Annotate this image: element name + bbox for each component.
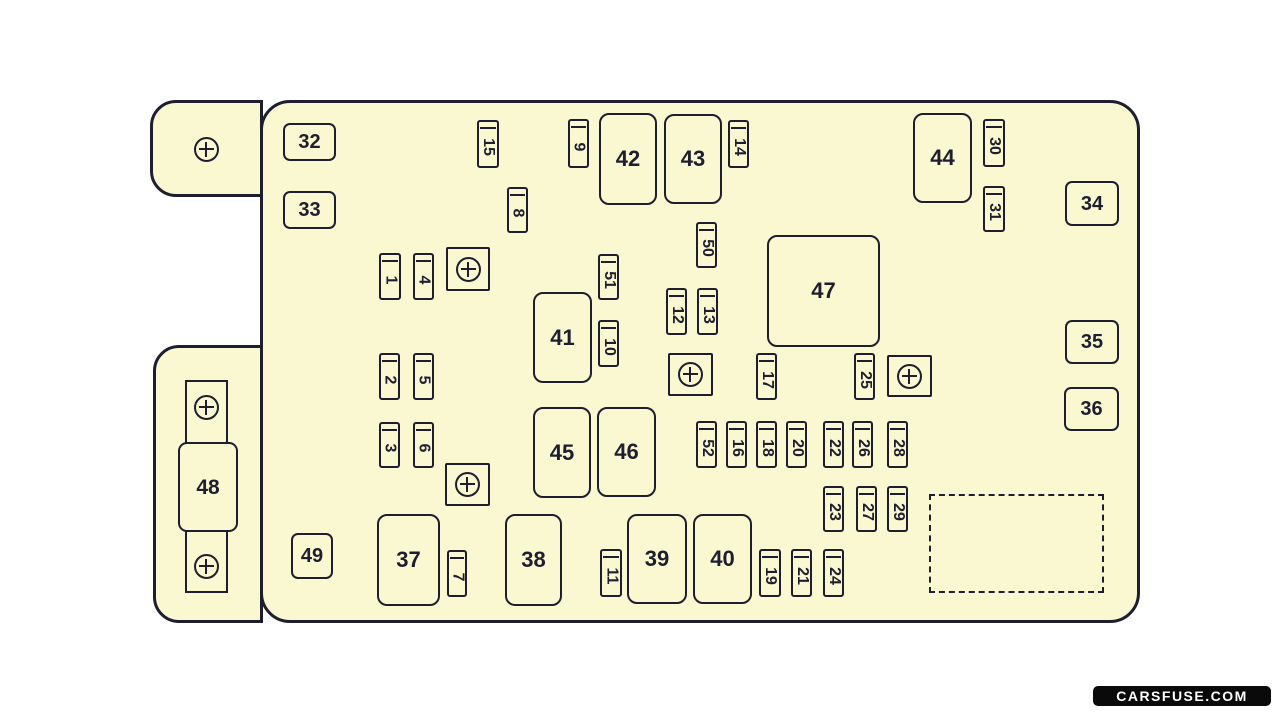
fuse-1: 1: [379, 253, 401, 300]
fuse-number-label: 7: [449, 572, 465, 581]
relay-39: 39: [627, 514, 687, 604]
fuse-clip-mark: [731, 127, 746, 129]
fuse-clip-mark: [382, 429, 397, 431]
bolt-terminal: [445, 463, 490, 506]
relay-44: 44: [913, 113, 972, 203]
fuse-number-label: 21: [794, 567, 810, 585]
fuse-24: 24: [823, 549, 844, 597]
fuse-number-label: 14: [731, 138, 747, 156]
bolt-icon: [455, 472, 480, 497]
fuse-clip-mark: [890, 428, 905, 430]
fuse-number-label: 26: [855, 439, 871, 457]
fuse-34: 34: [1065, 181, 1119, 226]
fuse-clip-mark: [699, 229, 714, 231]
fuse-number-label: 29: [890, 503, 906, 521]
fuse-number-label: 52: [699, 439, 715, 457]
fuse-number-label: 20: [789, 439, 805, 457]
relay-45: 45: [533, 407, 591, 498]
fuse-number-label: 48: [196, 477, 219, 498]
relay-42: 42: [599, 113, 657, 205]
fuse-30: 30: [983, 119, 1005, 167]
bolt-icon: [456, 257, 481, 282]
fuse-clip-mark: [416, 360, 431, 362]
bolt-icon: [194, 137, 219, 162]
fuse-number-label: 9: [571, 142, 587, 151]
watermark-text: CARSFUSE.COM: [1116, 688, 1248, 704]
fuse-number-label: 10: [601, 338, 617, 356]
fuse-52: 52: [696, 421, 717, 468]
fuse-clip-mark: [416, 429, 431, 431]
fuse-51: 51: [598, 254, 619, 300]
fuse-48: 48: [178, 442, 238, 532]
fuse-9: 9: [568, 119, 589, 168]
fuse-number-label: 23: [826, 503, 842, 521]
fuse-7: 7: [447, 550, 467, 597]
fuse-21: 21: [791, 549, 812, 597]
fuse-13: 13: [697, 288, 718, 335]
fuse-number-label: 1: [382, 275, 398, 284]
fuse-number-label: 30: [986, 137, 1002, 155]
fuse-number-label: 35: [1081, 332, 1103, 352]
fuse-28: 28: [887, 421, 908, 468]
fuse-clip-mark: [794, 556, 809, 558]
fuse-clip-mark: [986, 193, 1002, 195]
relay-47: 47: [767, 235, 880, 347]
fuse-number-label: 28: [890, 439, 906, 457]
fuse-number-label: 33: [298, 200, 320, 220]
fuse-27: 27: [856, 486, 877, 532]
fuse-number-label: 3: [382, 444, 398, 453]
fuse-10: 10: [598, 320, 619, 367]
relay-43: 43: [664, 114, 722, 204]
fuse-number-label: 43: [681, 148, 705, 170]
fuse-number-label: 37: [396, 549, 420, 571]
fuse-22: 22: [823, 421, 844, 468]
fuse-8: 8: [507, 187, 528, 233]
fuse-35: 35: [1065, 320, 1119, 364]
fuse-number-label: 22: [826, 439, 842, 457]
spare-slot-dashed: [929, 494, 1104, 593]
fuse-number-label: 36: [1080, 399, 1102, 419]
fuse-number-label: 47: [811, 280, 835, 302]
fuse-clip-mark: [826, 428, 841, 430]
fuse-clip-mark: [986, 126, 1002, 128]
fuse-number-label: 31: [986, 203, 1002, 221]
fuse-50: 50: [696, 222, 717, 268]
fuse-17: 17: [756, 353, 777, 400]
fuse-number-label: 15: [480, 138, 496, 156]
fuse-number-label: 44: [930, 147, 954, 169]
fuse-6: 6: [413, 422, 434, 468]
fuse-number-label: 34: [1081, 194, 1103, 214]
fuse-clip-mark: [480, 127, 496, 129]
fuse-20: 20: [786, 421, 807, 468]
fuse-number-label: 19: [762, 567, 778, 585]
fuse-number-label: 50: [699, 239, 715, 257]
fuse-clip-mark: [859, 493, 874, 495]
fuse-number-label: 24: [826, 567, 842, 585]
fuse-19: 19: [759, 549, 781, 597]
fuse-31: 31: [983, 186, 1005, 232]
fuse-box-diagram: 48 CARSFUSE.COM 373839404142434445464732…: [0, 0, 1280, 720]
fuse-number-label: 41: [550, 327, 574, 349]
fuse-number-label: 27: [859, 503, 875, 521]
relay-46: 46: [597, 407, 656, 497]
fuse-4: 4: [413, 253, 434, 300]
fuse-11: 11: [600, 549, 622, 597]
fuse-clip-mark: [826, 556, 841, 558]
bolt-icon: [897, 364, 922, 389]
fuse-14: 14: [728, 120, 749, 168]
fuse-number-label: 13: [700, 306, 716, 324]
fuse-number-label: 5: [416, 375, 432, 384]
fuse-3: 3: [379, 422, 400, 468]
fuse-clip-mark: [762, 556, 778, 558]
fuse-clip-mark: [759, 428, 774, 430]
relay-38: 38: [505, 514, 562, 606]
bolt-icon: [194, 554, 219, 579]
fuse-number-label: 39: [645, 548, 669, 570]
fuse-25: 25: [854, 353, 875, 400]
fuse-33: 33: [283, 191, 336, 229]
fuse-number-label: 16: [729, 439, 745, 457]
fuse-clip-mark: [450, 557, 464, 559]
fuse-clip-mark: [571, 126, 586, 128]
bolt-terminal: [668, 353, 713, 396]
fuse-2: 2: [379, 353, 400, 400]
fuse-clip-mark: [416, 260, 431, 262]
fuse-clip-mark: [699, 428, 714, 430]
fuse-number-label: 11: [603, 568, 619, 585]
fuse-5: 5: [413, 353, 434, 400]
fuse-29: 29: [887, 486, 908, 532]
fuse-number-label: 2: [382, 375, 398, 384]
fuse-36: 36: [1064, 387, 1119, 431]
relay-40: 40: [693, 514, 752, 604]
fuse-number-label: 8: [510, 209, 526, 218]
fuse-number-label: 46: [614, 441, 638, 463]
fuse-clip-mark: [382, 260, 398, 262]
fuse-number-label: 6: [416, 444, 432, 453]
fuse-clip-mark: [729, 428, 744, 430]
fuse-number-label: 45: [550, 442, 574, 464]
bolt-terminal: [446, 247, 490, 291]
fuse-12: 12: [666, 288, 687, 335]
fuse-number-label: 49: [301, 546, 323, 566]
relay-41: 41: [533, 292, 592, 383]
fuse-clip-mark: [700, 295, 715, 297]
fuse-49: 49: [291, 533, 333, 579]
fuse-clip-mark: [603, 556, 619, 558]
fuse-number-label: 4: [416, 275, 432, 284]
fuse-26: 26: [852, 421, 873, 468]
fuse-number-label: 38: [521, 549, 545, 571]
fuse-clip-mark: [855, 428, 870, 430]
fuse-clip-mark: [789, 428, 804, 430]
relay-37: 37: [377, 514, 440, 606]
fuse-number-label: 18: [759, 439, 775, 457]
fuse-23: 23: [823, 486, 844, 532]
fuse-clip-mark: [601, 327, 616, 329]
fuse-clip-mark: [382, 360, 397, 362]
bolt-icon: [678, 362, 703, 387]
fuse-number-label: 25: [857, 371, 873, 389]
fuse-number-label: 12: [669, 306, 685, 324]
fuse-clip-mark: [759, 360, 774, 362]
fuse-16: 16: [726, 421, 747, 468]
fuse-number-label: 17: [759, 371, 775, 389]
fuse-clip-mark: [826, 493, 841, 495]
fuse-number-label: 32: [298, 132, 320, 152]
fuse-18: 18: [756, 421, 777, 468]
fuse-15: 15: [477, 120, 499, 168]
fuse-clip-mark: [510, 194, 525, 196]
fuse-32: 32: [283, 123, 336, 161]
fuse-number-label: 40: [710, 548, 734, 570]
bolt-terminal: [887, 355, 932, 397]
bolt-icon: [194, 395, 219, 420]
fuse-clip-mark: [601, 261, 616, 263]
fuse-number-label: 51: [601, 271, 617, 289]
fuse-number-label: 42: [616, 148, 640, 170]
watermark-badge: CARSFUSE.COM: [1093, 686, 1271, 706]
fuse-clip-mark: [669, 295, 684, 297]
fuse-clip-mark: [890, 493, 905, 495]
fuse-clip-mark: [857, 360, 872, 362]
